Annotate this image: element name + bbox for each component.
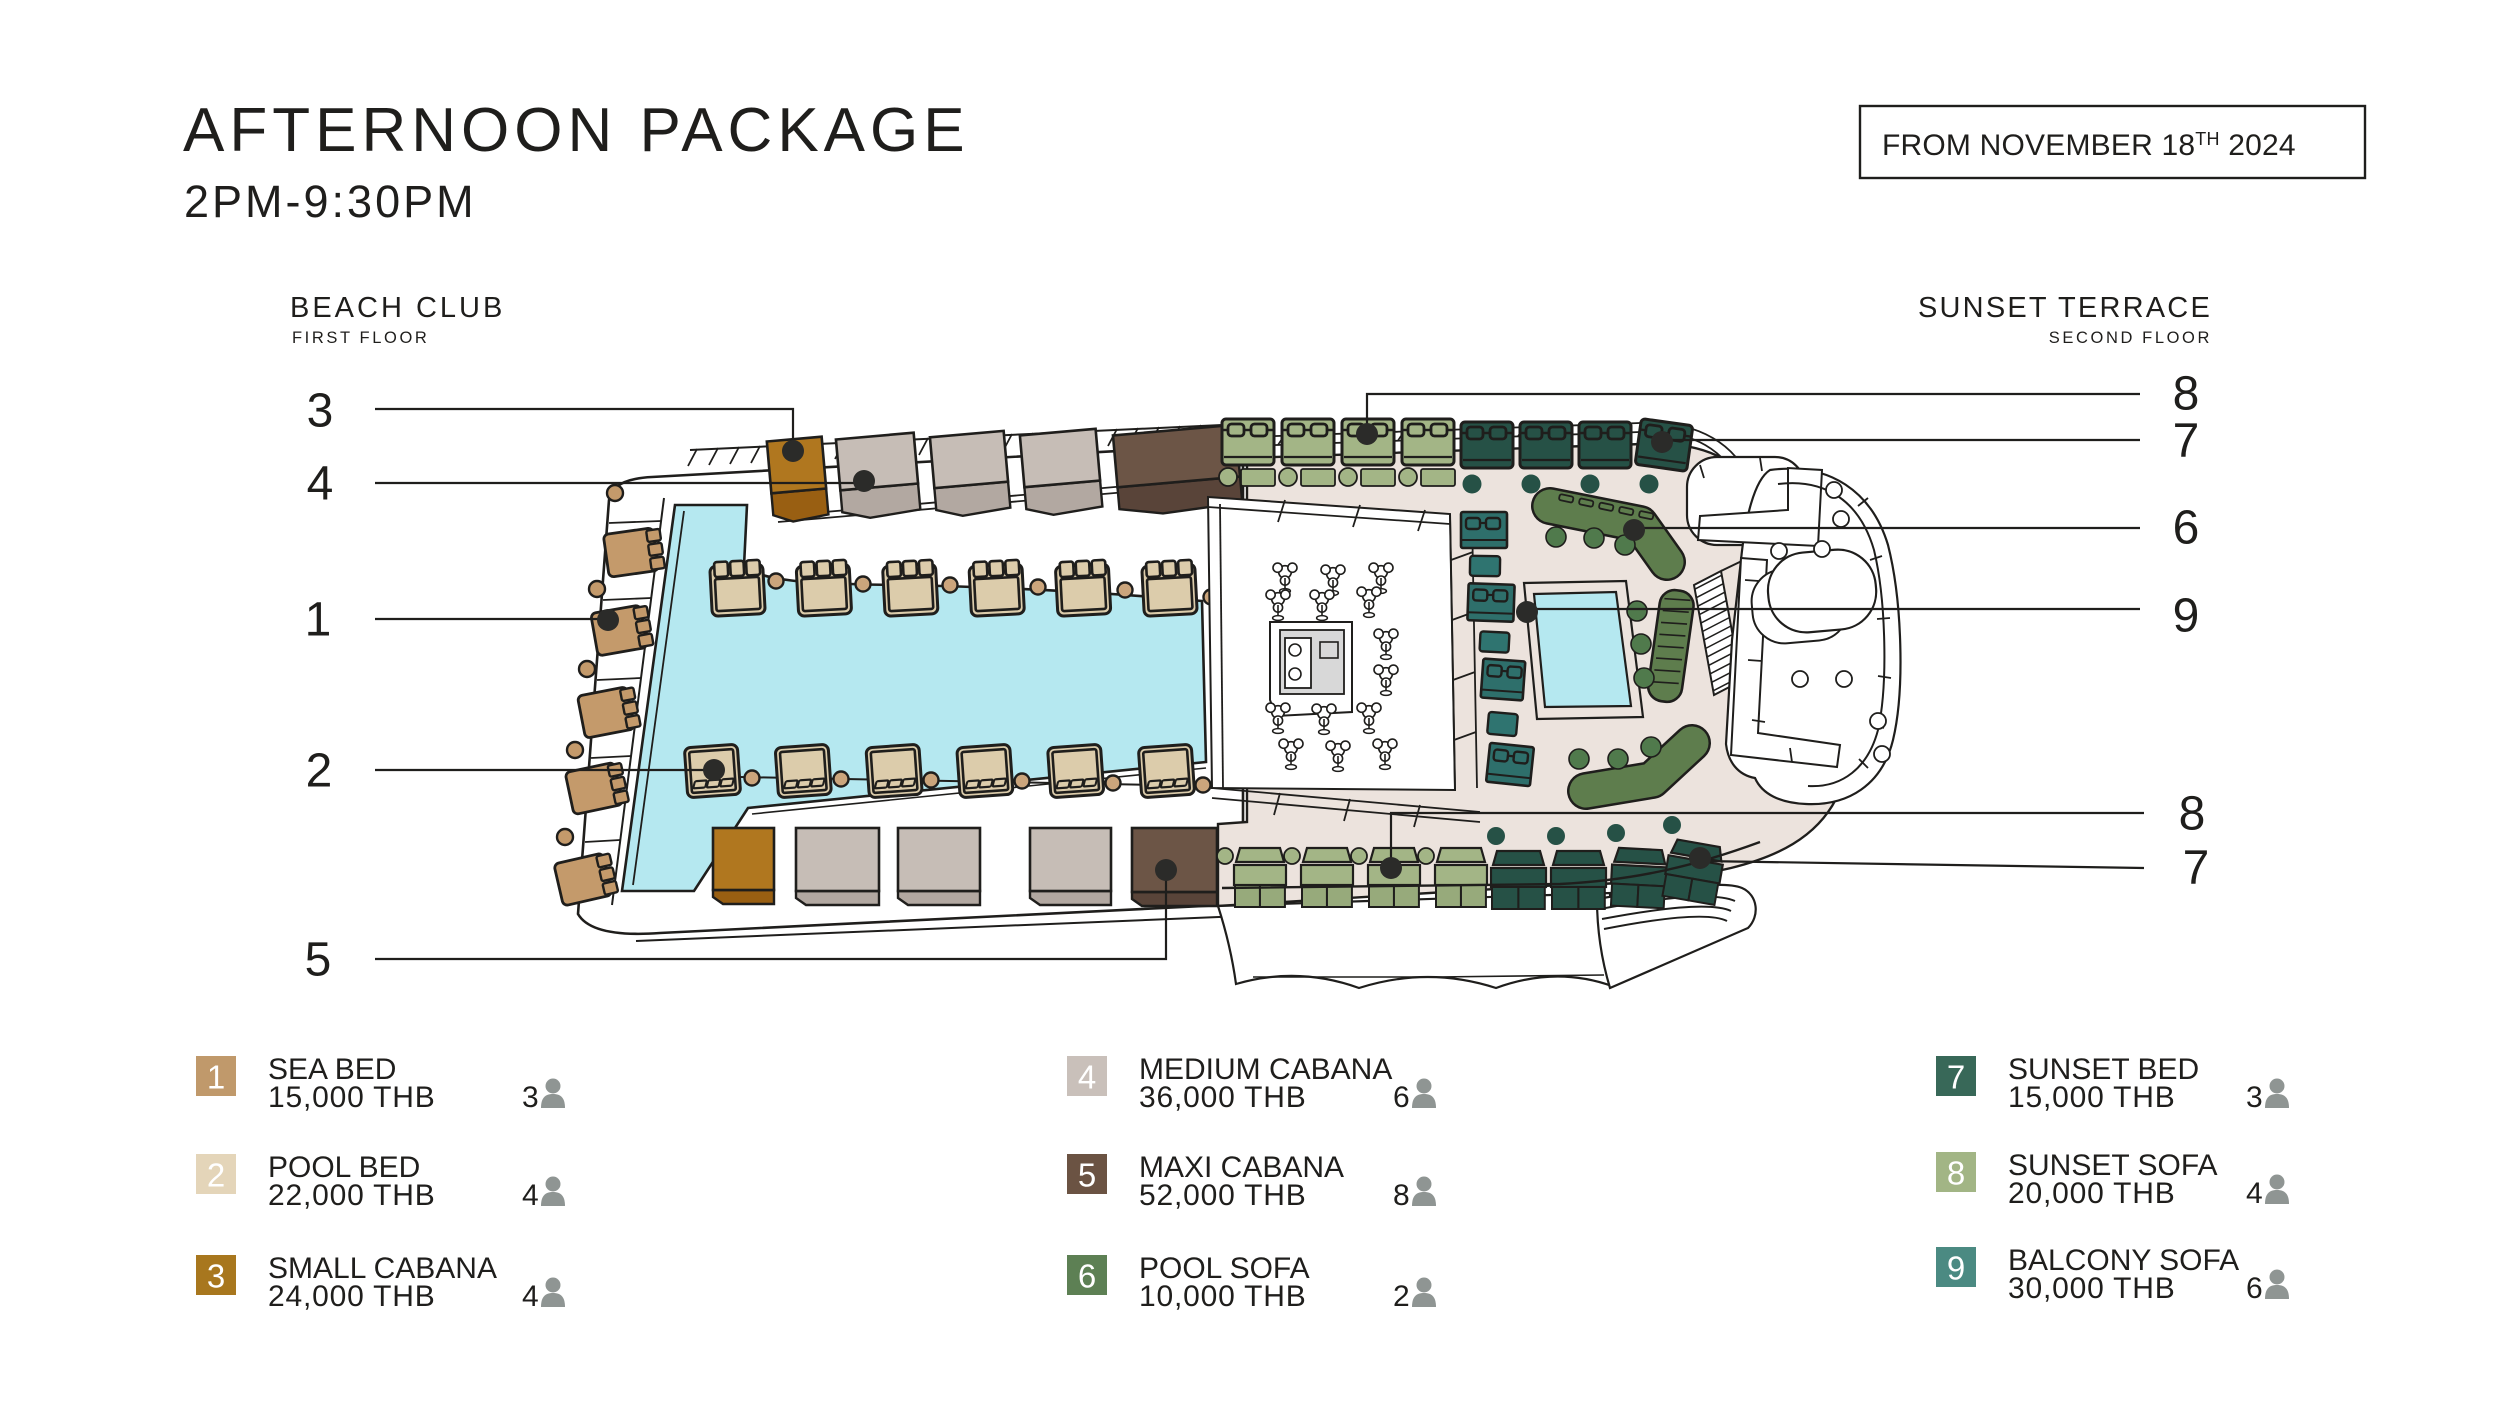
svg-text:4: 4: [2246, 1177, 2263, 1210]
svg-text:5: 5: [305, 934, 332, 987]
svg-text:9: 9: [1947, 1250, 1965, 1287]
svg-text:4: 4: [522, 1179, 539, 1212]
svg-text:3: 3: [207, 1258, 225, 1295]
svg-text:6: 6: [1078, 1258, 1096, 1295]
svg-text:4: 4: [1078, 1059, 1096, 1096]
svg-text:24,000 THB: 24,000 THB: [268, 1280, 436, 1313]
svg-text:7: 7: [2173, 415, 2200, 468]
svg-text:2: 2: [207, 1157, 225, 1194]
svg-text:8: 8: [2179, 788, 2206, 841]
svg-text:6: 6: [1393, 1081, 1410, 1114]
svg-text:2: 2: [1393, 1280, 1410, 1313]
svg-text:15,000 THB: 15,000 THB: [268, 1081, 436, 1114]
svg-text:22,000 THB: 22,000 THB: [268, 1179, 436, 1212]
svg-text:5: 5: [1078, 1157, 1096, 1194]
svg-text:8: 8: [1947, 1155, 1965, 1192]
svg-text:8: 8: [2173, 368, 2200, 421]
svg-text:SECOND FLOOR: SECOND FLOOR: [2049, 329, 2212, 347]
svg-text:9: 9: [2173, 590, 2200, 643]
svg-text:1: 1: [207, 1059, 225, 1096]
svg-text:7: 7: [2183, 842, 2210, 895]
svg-text:4: 4: [522, 1280, 539, 1313]
svg-text:6: 6: [2173, 502, 2200, 555]
svg-text:3: 3: [2246, 1081, 2263, 1114]
svg-text:2: 2: [306, 745, 333, 798]
svg-text:SUNSET TERRACE: SUNSET TERRACE: [1918, 292, 2212, 324]
svg-text:36,000 THB: 36,000 THB: [1139, 1081, 1307, 1114]
svg-text:FROM NOVEMBER 18TH 2024: FROM NOVEMBER 18TH 2024: [1882, 129, 2296, 162]
svg-text:1: 1: [305, 594, 332, 647]
svg-text:6: 6: [2246, 1272, 2263, 1305]
svg-text:8: 8: [1393, 1179, 1410, 1212]
svg-text:FIRST FLOOR: FIRST FLOOR: [292, 329, 429, 347]
svg-text:15,000 THB: 15,000 THB: [2008, 1081, 2176, 1114]
svg-text:BEACH CLUB: BEACH CLUB: [290, 292, 505, 324]
svg-text:2PM-9:30PM: 2PM-9:30PM: [184, 176, 477, 227]
svg-text:52,000 THB: 52,000 THB: [1139, 1179, 1307, 1212]
svg-text:20,000 THB: 20,000 THB: [2008, 1177, 2176, 1210]
svg-text:30,000 THB: 30,000 THB: [2008, 1272, 2176, 1305]
svg-text:4: 4: [307, 458, 334, 511]
svg-text:AFTERNOON PACKAGE: AFTERNOON PACKAGE: [183, 96, 970, 165]
svg-text:7: 7: [1947, 1059, 1965, 1096]
svg-text:3: 3: [307, 385, 334, 438]
svg-text:3: 3: [522, 1081, 539, 1114]
svg-text:10,000 THB: 10,000 THB: [1139, 1280, 1307, 1313]
